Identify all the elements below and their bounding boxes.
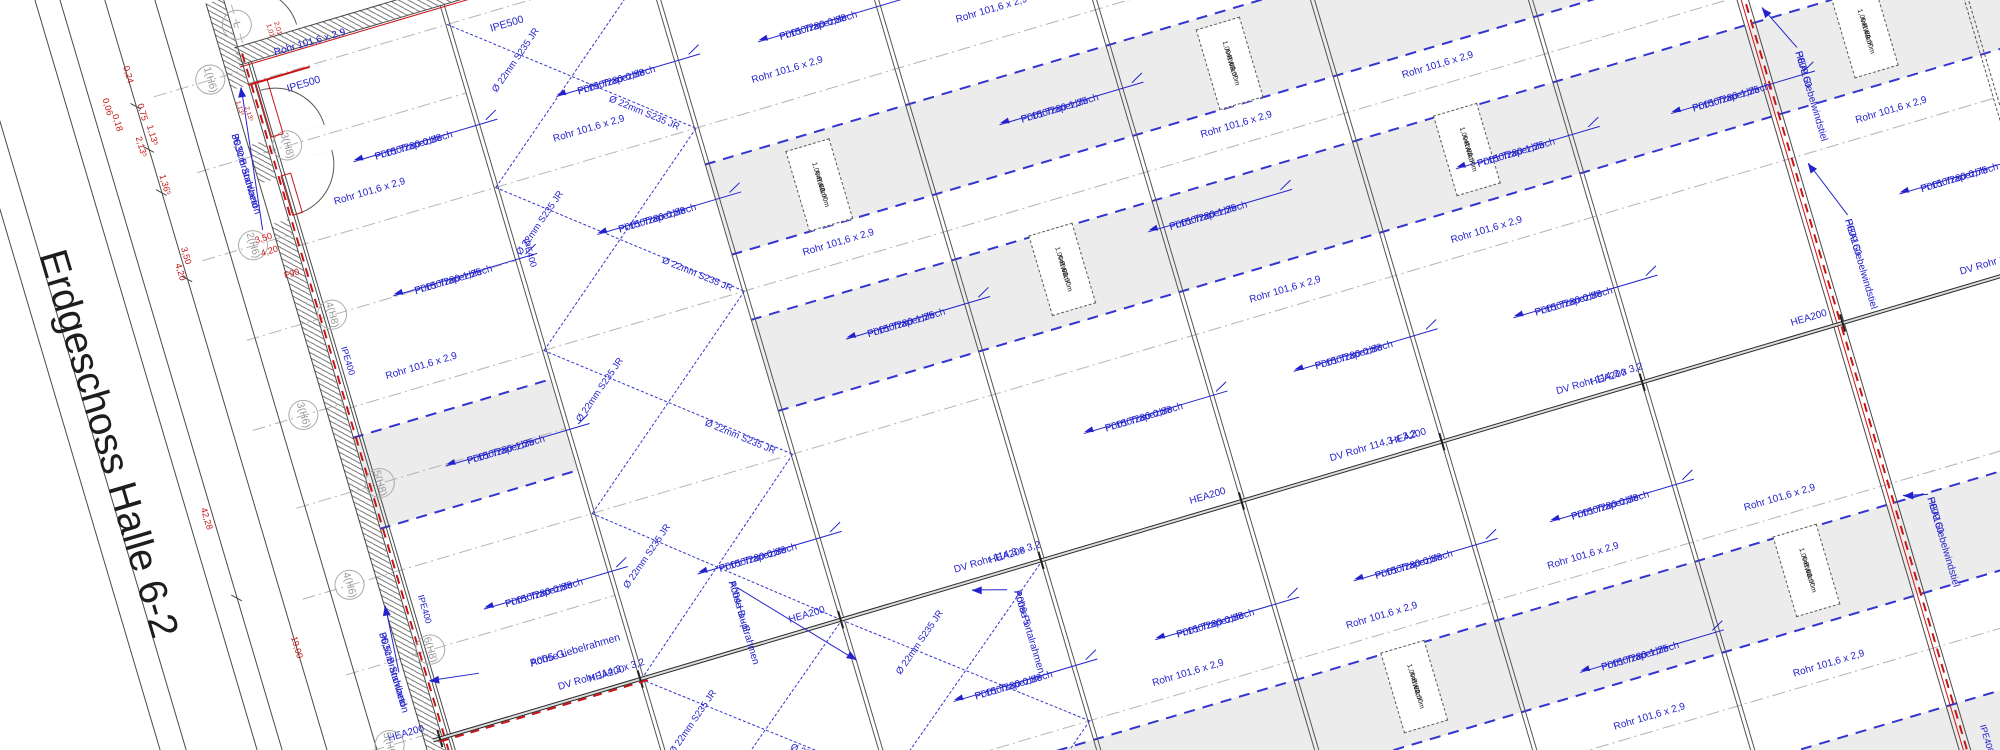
bracing-rod xyxy=(496,0,649,188)
component-text: Achse L xyxy=(529,648,569,670)
component-text: HEA160 xyxy=(1841,218,1864,257)
rohr-label: Rohr 101,6 x 2,9 xyxy=(955,0,1029,26)
axis-bubble: 4(H6) xyxy=(331,566,368,603)
brace-label: Ø 22mm S235 JR xyxy=(660,256,734,295)
dimension-text: 0,75 xyxy=(135,102,150,122)
rohr-label: Rohr 101,6 x 2,9 xyxy=(333,176,407,208)
rohr-label: Rohr 101,6 x 2,9 xyxy=(1546,540,1620,572)
trapezblech-text xyxy=(1084,390,1228,434)
rohr-label: Rohr 101,6 x 2,9 xyxy=(1450,214,1524,246)
leader-arrowhead xyxy=(968,586,982,594)
brace-label: Ø 22mm S235 JR xyxy=(788,743,862,750)
axis-bubble: 3(H6) xyxy=(285,396,322,433)
rwa-text: A=1,60m² xyxy=(811,169,828,201)
rwa-band xyxy=(353,379,577,529)
trapezblech-text xyxy=(353,119,497,163)
dimension-text: 0,18 xyxy=(110,113,125,133)
drawing-title: Erdgeschoss Halle 6-2 xyxy=(29,244,186,643)
rwa-text: A=1,60m² xyxy=(1798,555,1815,587)
cad-viewer-stage[interactable]: Ø 22mm S235 JRØ 22mm S235 JRØ 22mm S235 … xyxy=(0,0,2000,750)
dv-rohr-label: DV Rohr 114,3 x 3,2 xyxy=(1959,242,2000,278)
trapezblech-text xyxy=(484,566,628,610)
dimension-text: 2,13⁵ xyxy=(134,135,150,158)
fire-rating-dash xyxy=(439,678,650,742)
rwa-text: A=1,60m² xyxy=(1406,671,1423,703)
brace-label: Ø 22mm S235 JR xyxy=(668,689,720,750)
component-text: IPE400 xyxy=(338,345,357,377)
brace-label: Ø 22mm S235 JR xyxy=(895,609,947,677)
wall-hatch xyxy=(234,0,719,65)
column-grid-line xyxy=(440,4,822,750)
bracing-rod xyxy=(544,128,697,351)
brace-label: Ø 22mm S235 JR xyxy=(622,523,674,591)
rohr-label: Rohr 101,6 x 2,9 xyxy=(1792,648,1866,680)
rohr-label: Rohr 101,6 x 2,9 xyxy=(552,113,626,145)
leader-arrowhead xyxy=(846,651,862,665)
rwa-text: A=1,60m² xyxy=(1221,47,1238,79)
component-text: IPE500 xyxy=(489,14,525,35)
trapezblech-text xyxy=(1550,479,1694,523)
leader-arrowhead xyxy=(425,676,440,686)
bracing-rod xyxy=(592,291,745,514)
rohr-label: Rohr 101,6 x 2,9 xyxy=(1345,600,1419,632)
component-text: Achse 5 xyxy=(1010,589,1032,627)
dimension-text: 19,00 xyxy=(289,635,305,659)
rohr-label: Rohr 101,6 x 2,9 xyxy=(1613,701,1687,733)
trapezblech-text xyxy=(1513,275,1657,319)
dimension-text: 0,24 xyxy=(121,65,136,85)
rohr-label: Rohr 101,6 x 2,9 xyxy=(1248,274,1322,306)
rohr-label: Rohr 101,6 x 2,9 xyxy=(750,54,824,86)
rwa-text: A=1,60m² xyxy=(1856,16,1873,48)
leader-arrowhead xyxy=(1899,491,1913,500)
brace-label: Ø 22mm S235 JR xyxy=(703,419,777,458)
rwa-text: A=1,60m² xyxy=(1054,254,1071,286)
rohr-label: Rohr 101,6 x 2,9 xyxy=(1151,657,1225,689)
rwa-text: A=1,60m² xyxy=(1458,134,1475,166)
trapezblech-text xyxy=(393,253,537,297)
